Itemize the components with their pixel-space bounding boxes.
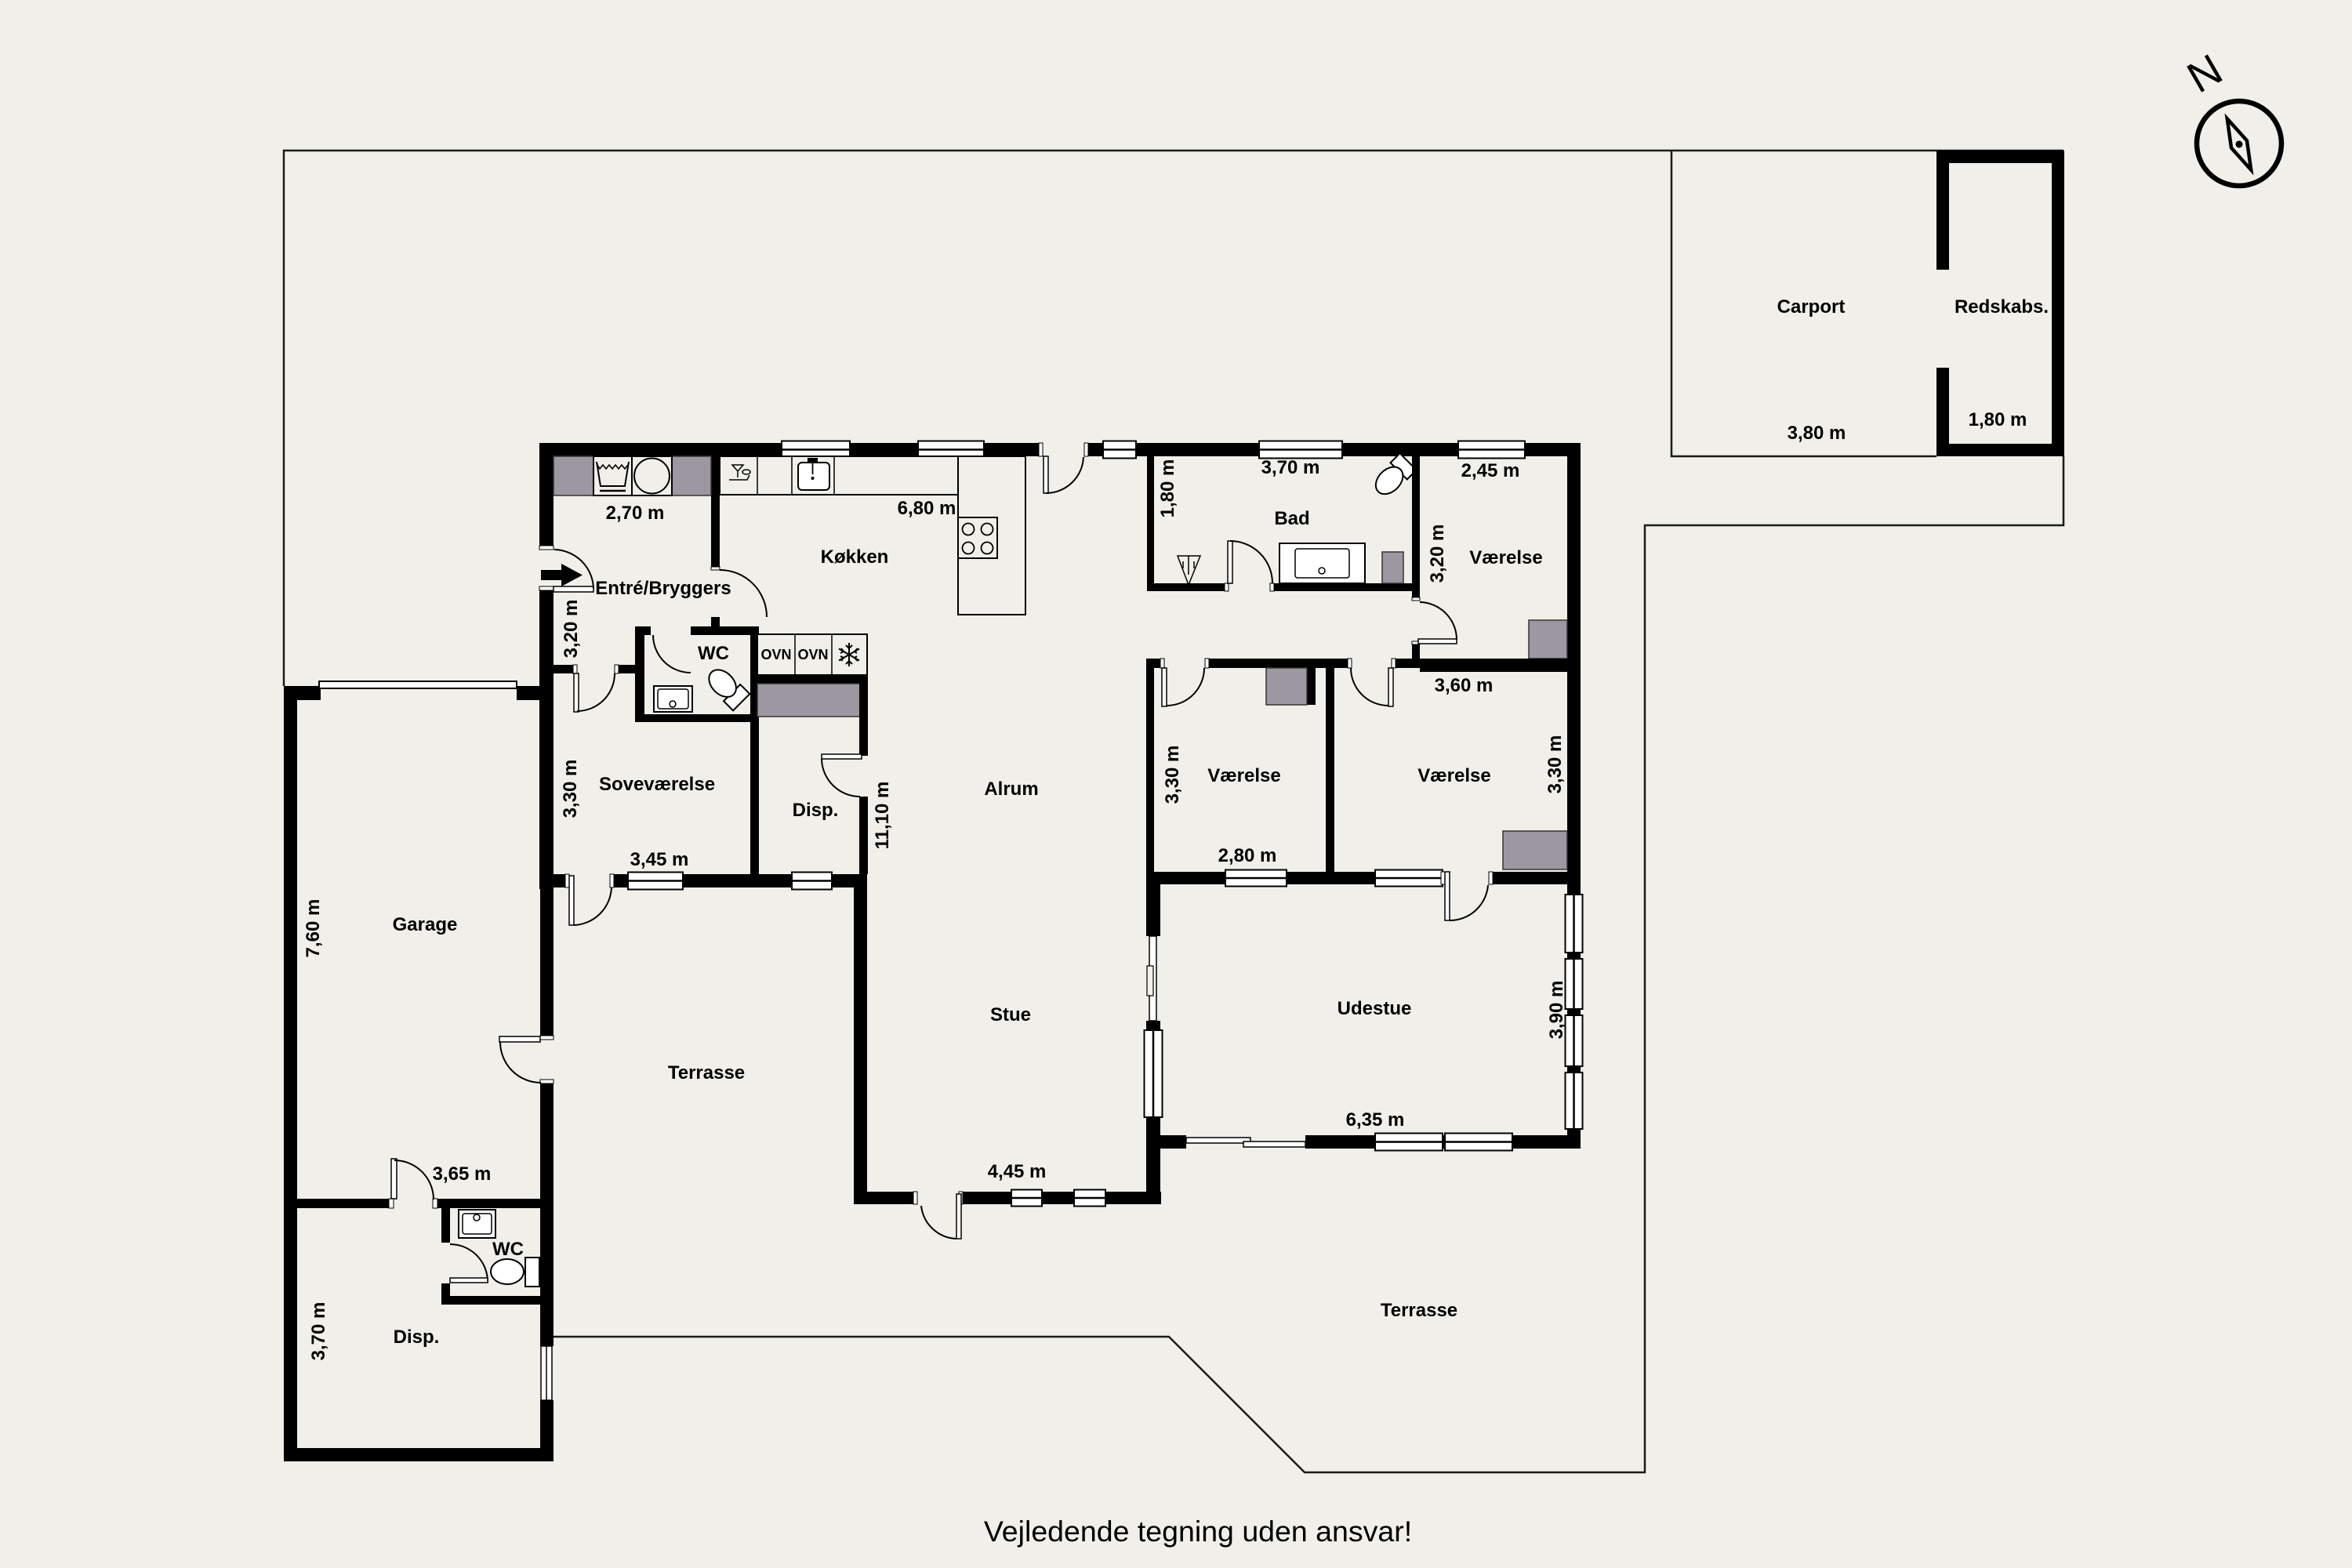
svg-text:OVN: OVN: [797, 647, 828, 662]
svg-text:3,20 m: 3,20 m: [561, 600, 582, 659]
svg-text:WC: WC: [698, 643, 729, 664]
svg-text:Vejledende tegning uden ansvar: Vejledende tegning uden ansvar!: [984, 1515, 1412, 1548]
svg-text:3,90 m: 3,90 m: [1546, 981, 1567, 1040]
svg-text:Disp.: Disp.: [793, 800, 839, 821]
svg-text:WC: WC: [492, 1239, 524, 1260]
svg-text:2,80 m: 2,80 m: [1218, 845, 1277, 866]
svg-text:OVN: OVN: [760, 647, 791, 662]
svg-text:3,80 m: 3,80 m: [1788, 423, 1846, 444]
svg-text:Garage: Garage: [393, 914, 458, 935]
svg-text:4,45 m: 4,45 m: [988, 1161, 1047, 1182]
svg-text:6,80 m: 6,80 m: [898, 498, 956, 519]
svg-text:Disp.: Disp.: [394, 1327, 440, 1348]
svg-text:3,65 m: 3,65 m: [433, 1163, 492, 1185]
svg-text:6,35 m: 6,35 m: [1346, 1109, 1405, 1131]
svg-text:Stue: Stue: [990, 1004, 1031, 1025]
svg-text:Udestue: Udestue: [1338, 998, 1412, 1019]
svg-text:Carport: Carport: [1777, 296, 1846, 318]
svg-text:3,45 m: 3,45 m: [630, 849, 689, 870]
svg-text:3,70 m: 3,70 m: [308, 1302, 329, 1361]
svg-text:2,45 m: 2,45 m: [1461, 460, 1520, 481]
svg-text:7,60 m: 7,60 m: [303, 899, 324, 958]
svg-text:Alrum: Alrum: [984, 779, 1038, 800]
svg-text:Bad: Bad: [1274, 508, 1309, 529]
svg-text:Værelse: Værelse: [1469, 547, 1542, 568]
svg-text:Entré/Bryggers: Entré/Bryggers: [595, 578, 731, 599]
svg-text:Terrasse: Terrasse: [1381, 1300, 1457, 1321]
svg-text:3,60 m: 3,60 m: [1435, 675, 1494, 696]
svg-text:2,70 m: 2,70 m: [606, 503, 665, 524]
svg-text:1,80 m: 1,80 m: [1969, 409, 2027, 430]
svg-text:Værelse: Værelse: [1207, 765, 1280, 786]
svg-text:3,30 m: 3,30 m: [1162, 746, 1183, 804]
svg-text:Terrasse: Terrasse: [668, 1062, 745, 1083]
svg-text:Køkken: Køkken: [821, 546, 889, 568]
svg-text:3,20 m: 3,20 m: [1427, 524, 1448, 583]
svg-text:3,70 m: 3,70 m: [1261, 457, 1320, 478]
svg-text:3,30 m: 3,30 m: [1544, 735, 1566, 794]
svg-text:Redskabs.: Redskabs.: [1955, 296, 2049, 318]
svg-text:1,80 m: 1,80 m: [1157, 459, 1178, 518]
svg-text:Soveværelse: Soveværelse: [599, 774, 715, 795]
svg-text:Værelse: Værelse: [1417, 765, 1490, 786]
svg-text:11,10 m: 11,10 m: [872, 782, 893, 850]
svg-text:3,30 m: 3,30 m: [560, 760, 581, 818]
